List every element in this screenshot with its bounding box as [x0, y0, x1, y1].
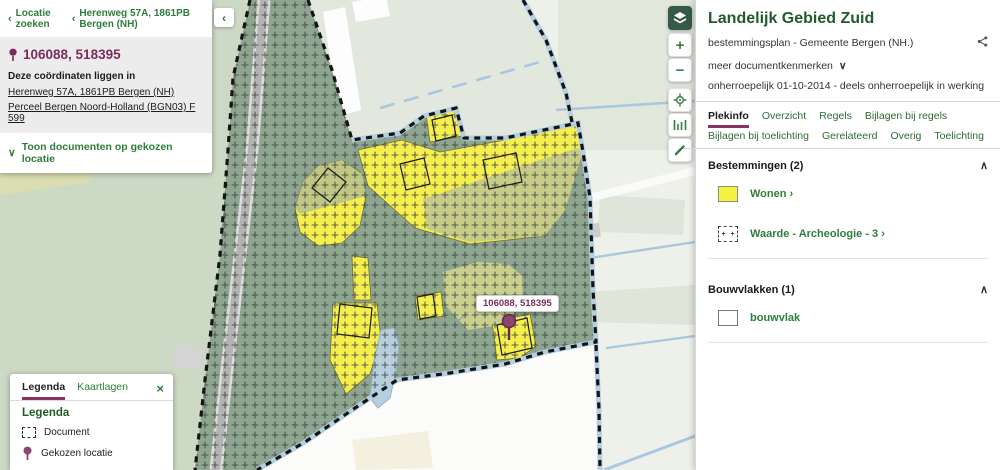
tab-kaartlagen[interactable]: Kaartlagen [77, 381, 128, 400]
archeologie-swatch: ++ [718, 226, 738, 242]
plan-status: onherroepelijk 01-10-2014 - deels onherr… [708, 80, 988, 92]
wonen-link[interactable]: Wonen › [750, 188, 793, 200]
tab-overig[interactable]: Overig [890, 128, 921, 148]
show-documents-toggle[interactable]: ∨ Toon documenten op gekozen locatie [0, 133, 212, 173]
crosshair-icon [673, 93, 687, 107]
coordinates-row: 106088, 518395 [8, 47, 204, 62]
bestemming-waarde-row[interactable]: ++ Waarde - Archeologie - 3 › [708, 218, 988, 250]
legend-panel: Legenda Kaartlagen × Legenda Document Ge… [10, 374, 173, 470]
plan-info-panel: Landelijk Gebied Zuid bestemmingsplan - … [695, 0, 1000, 470]
tab-legenda[interactable]: Legenda [22, 381, 65, 400]
chevron-right-icon: › [881, 228, 885, 240]
show-documents-label: Toon documenten op gekozen locatie [22, 141, 204, 165]
tab-overzicht[interactable]: Overzicht [762, 108, 806, 128]
plan-subtitle: bestemmingsplan - Gemeente Bergen (NH.) [708, 37, 913, 49]
more-documentkenmerken-label: meer documentkenmerken [708, 60, 833, 72]
map-field-east1 [598, 195, 685, 235]
measure-button[interactable] [668, 113, 692, 137]
tab-gerelateerd[interactable]: Gerelateerd [822, 128, 877, 148]
bestemmingen-title: Bestemmingen (2) [708, 160, 803, 172]
parcel-link[interactable]: Perceel Bergen Noord-Holland (BGN03) F 5… [8, 102, 204, 124]
breadcrumb-location-link[interactable]: Herenweg 57A, 1861PB Bergen (NH) [79, 8, 204, 30]
waarde-archeologie-link[interactable]: Waarde - Archeologie - 3 › [750, 228, 885, 240]
bouwvlak-row[interactable]: bouwvlak [708, 302, 988, 334]
divider [708, 342, 988, 343]
map-field-east2 [588, 285, 695, 325]
address-link[interactable]: Herenweg 57A, 1861PB Bergen (NH) [8, 87, 204, 98]
legend-item-document: Document [10, 423, 173, 442]
plan-viewer-app: 106088, 518395 + − ‹ Locatie zoeken ‹ [0, 0, 1000, 470]
chevron-up-icon[interactable]: ∧ [980, 159, 988, 172]
wonen-swatch [718, 186, 738, 202]
zoom-out-button[interactable]: − [668, 58, 692, 82]
legend-tabbar: Legenda Kaartlagen × [10, 374, 173, 400]
locate-button[interactable] [668, 88, 692, 112]
chevron-up-icon[interactable]: ∧ [980, 283, 988, 296]
bestemmingen-header: Bestemmingen (2) ∧ [708, 149, 988, 178]
zoom-in-button[interactable]: + [668, 33, 692, 57]
relations-icon[interactable] [977, 36, 988, 50]
location-pin-icon [22, 446, 33, 461]
chevron-right-icon: › [790, 188, 794, 200]
bouwvlak-swatch [718, 310, 738, 326]
coordinates-intro: Deze coördinaten liggen in [8, 71, 204, 82]
tab-regels[interactable]: Regels [819, 108, 852, 128]
tab-bijlagen-bij-regels[interactable]: Bijlagen bij regels [865, 108, 947, 128]
chevron-left-icon: ‹ [8, 13, 12, 25]
coordinates-value: 106088, 518395 [23, 47, 121, 62]
scale-bars-icon [673, 118, 687, 132]
breadcrumb-back-link[interactable]: Locatie zoeken [16, 8, 68, 30]
more-documentkenmerken-toggle[interactable]: meer documentkenmerken ∨ [708, 60, 988, 72]
close-icon[interactable]: × [156, 381, 164, 396]
legend-item-location: Gekozen locatie [10, 442, 173, 465]
tab-plekinfo[interactable]: Plekinfo [708, 108, 749, 128]
draw-button[interactable] [668, 138, 692, 162]
legend-item-label: Document [44, 427, 90, 438]
coordinates-block: 106088, 518395 Deze coördinaten liggen i… [0, 37, 212, 133]
bouwvlakken-header: Bouwvlakken (1) ∧ [708, 273, 988, 302]
plan-title: Landelijk Gebied Zuid [708, 10, 988, 28]
pencil-icon [673, 143, 687, 157]
plan-subtitle-row: bestemmingsplan - Gemeente Bergen (NH.) [708, 36, 988, 50]
chevron-down-icon: ∨ [8, 147, 16, 159]
plan-tabbar: Plekinfo Overzicht Regels Bijlagen bij r… [708, 102, 988, 148]
map-coordinate-label: 106088, 518395 [476, 295, 559, 312]
breadcrumb: ‹ Locatie zoeken ‹ Herenweg 57A, 1861PB … [0, 0, 212, 37]
layers-button[interactable] [668, 6, 692, 30]
tab-bijlagen-bij-toelichting[interactable]: Bijlagen bij toelichting [708, 128, 809, 148]
legend-heading: Legenda [10, 401, 173, 423]
bestemming-wonen-row[interactable]: Wonen › [708, 178, 988, 210]
layers-icon [673, 11, 687, 25]
chevron-left-icon: ‹ [72, 13, 76, 25]
legend-item-label: Gekozen locatie [41, 448, 113, 459]
location-pin-icon [8, 48, 18, 62]
bouwvlakken-title: Bouwvlakken (1) [708, 284, 795, 296]
chevron-down-icon: ∨ [839, 60, 847, 72]
document-outline-icon [22, 427, 36, 438]
tab-toelichting[interactable]: Toelichting [934, 128, 984, 148]
collapse-panel-button[interactable]: ‹ [214, 8, 234, 27]
bouwvlak-link[interactable]: bouwvlak [750, 312, 800, 324]
location-panel: ‹ Locatie zoeken ‹ Herenweg 57A, 1861PB … [0, 0, 212, 173]
